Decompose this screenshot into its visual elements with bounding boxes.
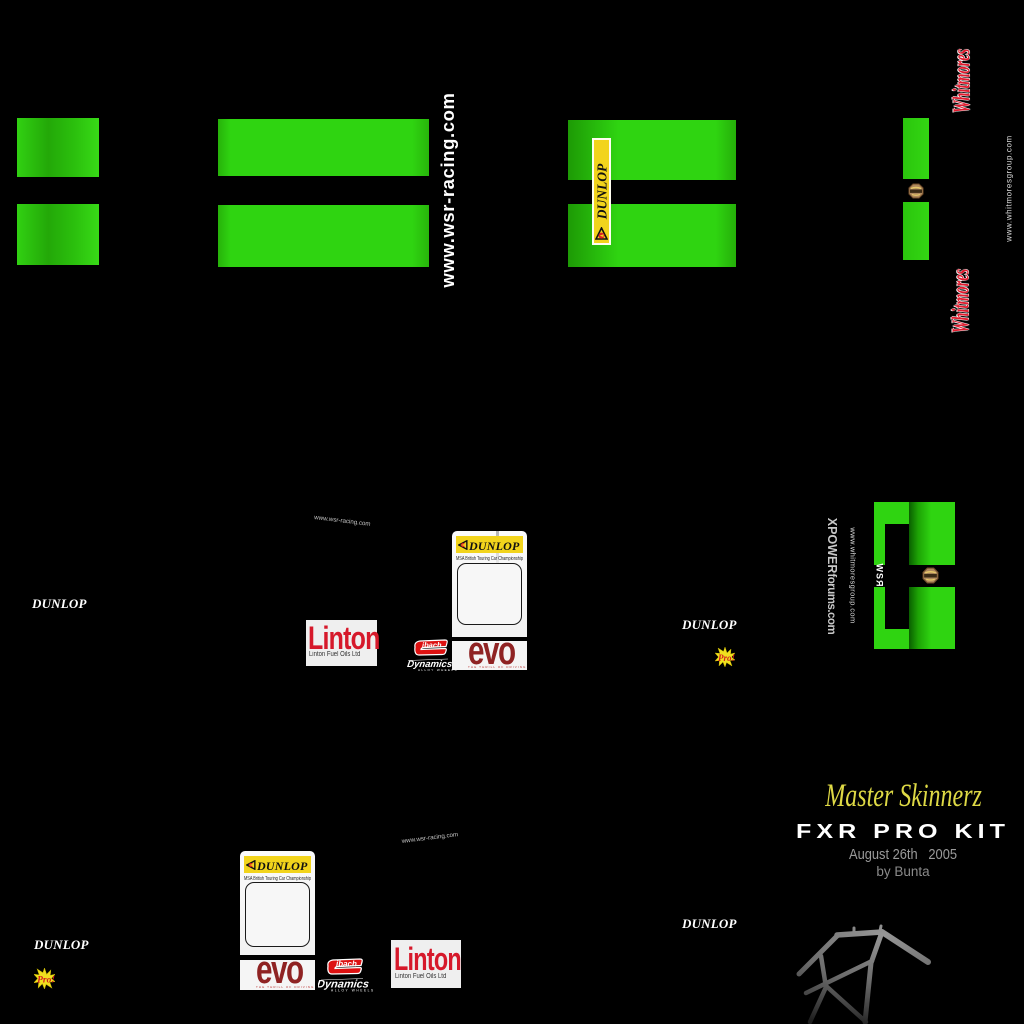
svg-text:FXR PRO KIT: FXR PRO KIT — [796, 821, 1010, 843]
svg-text:Pro!: Pro! — [37, 976, 55, 986]
svg-text:ibach: ibach — [336, 960, 357, 969]
svg-text:Pro!: Pro! — [718, 653, 735, 663]
svg-text:August 26th 2005: August 26th 2005 — [849, 846, 957, 863]
svg-text:ALLOY WHEELS: ALLOY WHEELS — [331, 989, 374, 993]
svg-text:MSA British Touring Car Champi: MSA British Touring Car Championship — [456, 556, 523, 562]
svg-text:ibach: ibach — [422, 641, 442, 650]
